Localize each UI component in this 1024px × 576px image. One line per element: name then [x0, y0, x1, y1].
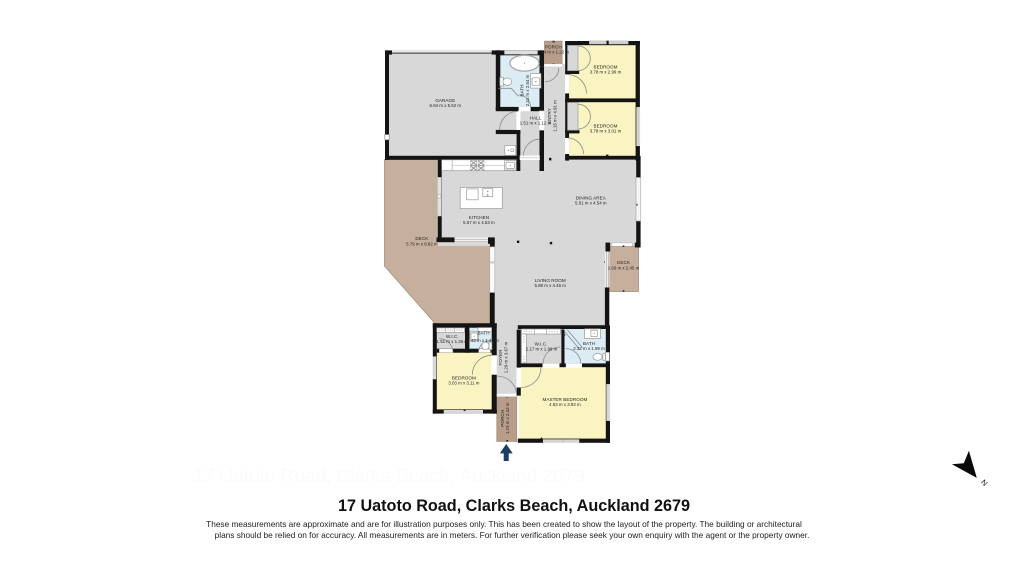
svg-text:2.32 m x 1.99 m: 2.32 m x 1.99 m: [573, 346, 605, 351]
svg-text:BATH: BATH: [478, 330, 490, 335]
svg-text:3.03 m x 3.11 m: 3.03 m x 3.11 m: [448, 381, 479, 386]
svg-text:DECK: DECK: [617, 260, 631, 265]
svg-text:6.94 m x 5.52 m: 6.94 m x 5.52 m: [430, 103, 462, 108]
svg-text:plans should be relied on for: plans should be relied on for accuracy. …: [215, 530, 810, 540]
svg-text:4.53 m x 3.92 m: 4.53 m x 3.92 m: [549, 402, 581, 407]
svg-text:1.66 m x 2.45 m: 1.66 m x 2.45 m: [608, 266, 640, 271]
svg-text:1.14 m x 1.22 m: 1.14 m x 1.22 m: [538, 50, 570, 55]
svg-text:5.01 m x 4.54 m: 5.01 m x 4.54 m: [575, 201, 607, 206]
svg-text:17 Uatoto Road, Clarks Beach,: 17 Uatoto Road, Clarks Beach, Auckland 2…: [193, 466, 585, 487]
svg-text:1.51 m x 1.36 m: 1.51 m x 1.36 m: [437, 339, 469, 344]
svg-text:3.78 m x 2.99 m: 3.78 m x 2.99 m: [590, 70, 622, 75]
svg-text:5.79 m x 8.82 m: 5.79 m x 8.82 m: [406, 241, 438, 246]
svg-text:17 Uatoto Road, Clarks Beach,: 17 Uatoto Road, Clarks Beach, Auckland 2…: [338, 497, 690, 515]
svg-text:BEDROOM: BEDROOM: [593, 123, 617, 128]
svg-text:5.57 m x 4.53 m: 5.57 m x 4.53 m: [463, 220, 495, 225]
svg-text:2.17 m x 1.99 m: 2.17 m x 1.99 m: [526, 346, 558, 351]
svg-text:These measurements are approxi: These measurements are approximate and a…: [206, 519, 802, 529]
svg-text:5.98 m x 4.46 m: 5.98 m x 4.46 m: [534, 283, 566, 288]
svg-text:1.42 m x 1.34 m: 1.42 m x 1.34 m: [467, 338, 499, 343]
svg-text:3.78 m x 3.01 m: 3.78 m x 3.01 m: [590, 129, 622, 134]
